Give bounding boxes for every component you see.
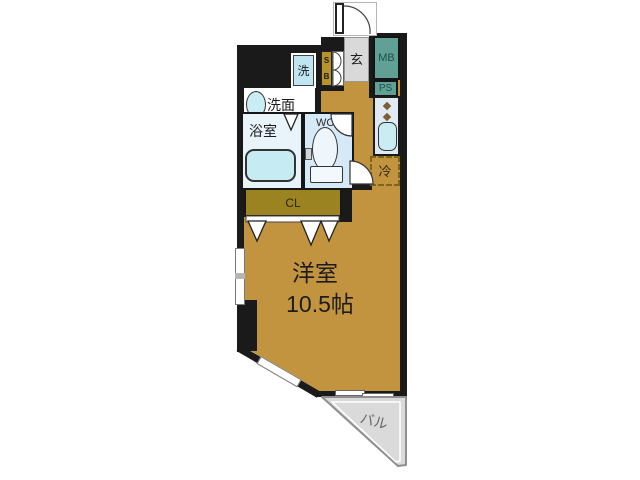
closet-door-mark <box>321 221 338 241</box>
floor-plan: 玄 S B 洗 洗面 浴室 WC MB PS <box>0 0 640 480</box>
closet-door-mark <box>248 221 266 241</box>
wc-door-arc <box>331 114 352 136</box>
shoebox-door-arc <box>333 52 341 70</box>
plan-symbols: バル <box>0 0 640 480</box>
closet-door-mark <box>301 221 321 245</box>
main-room-label: 洋室 <box>265 260 365 286</box>
bath-door-mark <box>284 114 298 130</box>
main-room-size: 10.5帖 <box>255 291 385 317</box>
main-door-arc <box>350 161 373 184</box>
shoebox-door-arc <box>333 70 341 86</box>
entrance-door-arc <box>344 6 370 34</box>
